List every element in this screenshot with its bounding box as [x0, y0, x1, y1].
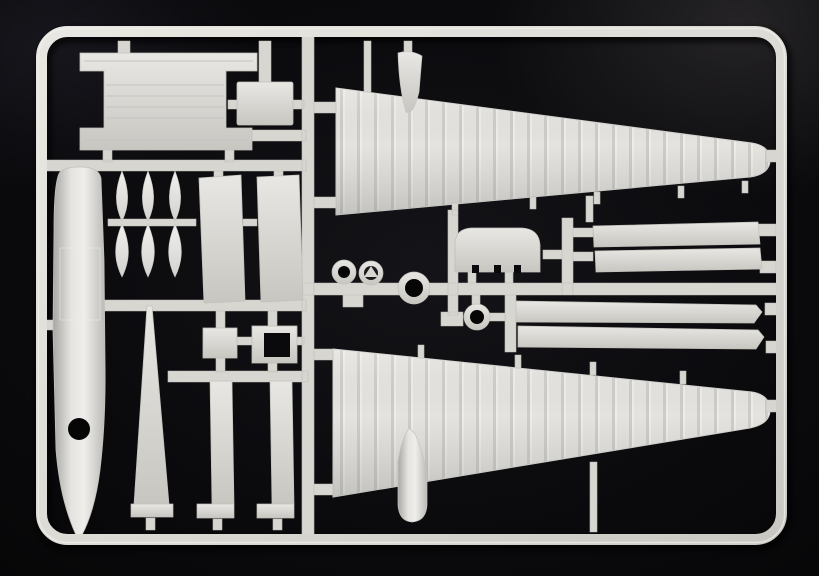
fuselage-body	[53, 167, 105, 538]
part-ring-large	[398, 272, 430, 304]
photo-stage	[0, 0, 819, 576]
part-cowl	[455, 228, 540, 273]
part-flap-strip-lower-1	[516, 301, 762, 323]
part-square-plate	[203, 328, 237, 358]
part-door-panel-right	[257, 175, 303, 302]
cowl-notch	[514, 265, 521, 273]
gear-door-strip	[270, 381, 294, 504]
part-fuselage-half	[53, 167, 105, 538]
gear-door-foot	[257, 504, 294, 518]
part-ring-small	[332, 260, 356, 284]
open-box-cavity	[264, 333, 290, 357]
ring-hole	[470, 310, 484, 324]
part-door-panel-left	[199, 175, 245, 303]
cowl-notch	[472, 265, 479, 273]
part-small-panel	[237, 82, 293, 125]
gear-door-foot	[197, 504, 234, 518]
ring-hole	[405, 279, 423, 297]
part-flap-strip-lower-2	[518, 326, 764, 349]
fuselage-hole	[68, 418, 90, 440]
tail-fin-base	[131, 504, 173, 517]
part-flap-strip-upper-2	[595, 248, 762, 272]
part-ring-right	[464, 304, 490, 330]
cowl-notch	[494, 265, 501, 273]
part-flap-strip-upper-1	[593, 222, 760, 247]
part-open-box	[252, 326, 297, 363]
ring-hole	[338, 266, 350, 278]
sprue-photo	[0, 0, 819, 576]
part-wheel-hub	[359, 261, 383, 285]
gear-door-strip	[210, 381, 234, 504]
